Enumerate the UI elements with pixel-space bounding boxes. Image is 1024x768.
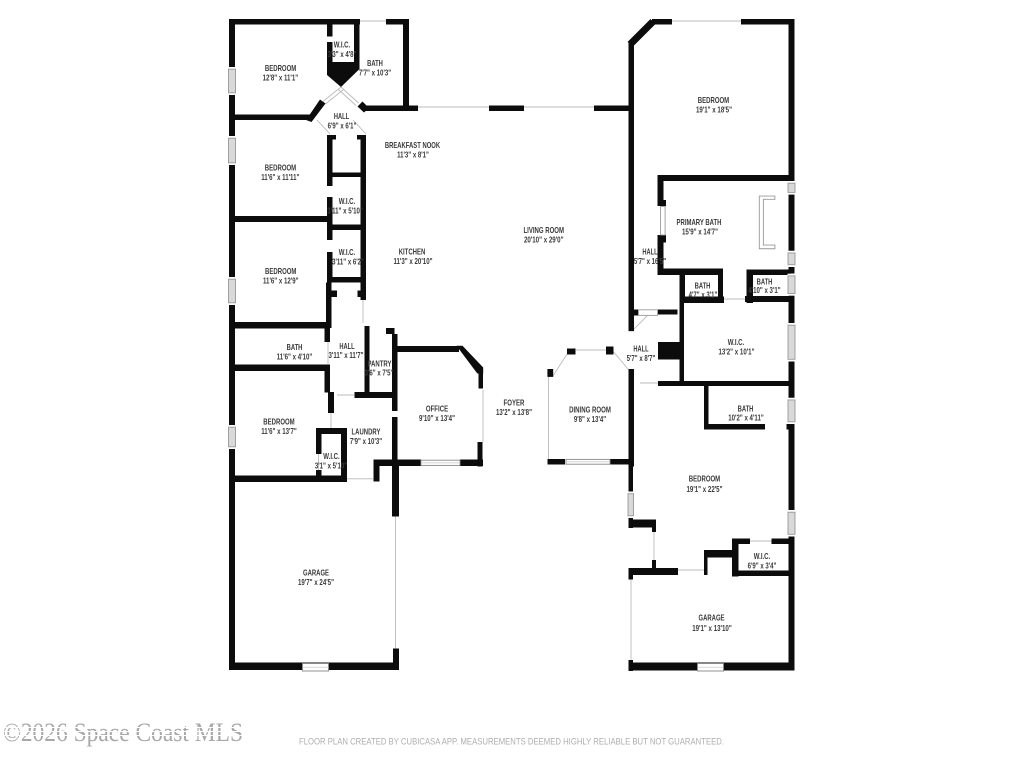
svg-text:5'7" x 8'7": 5'7" x 8'7" (627, 354, 656, 363)
svg-text:BEDROOM: BEDROOM (265, 267, 297, 276)
svg-text:19'1" x 13'10": 19'1" x 13'10" (692, 624, 732, 633)
svg-text:20'10" x 29'0": 20'10" x 29'0" (524, 235, 564, 244)
svg-text:W.I.C.: W.I.C. (334, 40, 351, 49)
svg-text:6'9" x 6'1": 6'9" x 6'1" (328, 121, 357, 130)
svg-text:BATH: BATH (695, 281, 711, 290)
svg-text:7'7" x 10'3": 7'7" x 10'3" (359, 68, 391, 77)
svg-text:GARAGE: GARAGE (699, 613, 725, 622)
svg-text:12'8" x 11'1": 12'8" x 11'1" (263, 74, 299, 83)
svg-text:W.I.C.: W.I.C. (728, 338, 745, 347)
svg-text:PANTRY: PANTRY (367, 359, 392, 368)
svg-text:10'2" x 4'11": 10'2" x 4'11" (728, 413, 764, 422)
svg-text:PRIMARY BATH: PRIMARY BATH (677, 218, 722, 227)
svg-text:W.I.C.: W.I.C. (339, 197, 356, 206)
svg-text:BEDROOM: BEDROOM (689, 474, 721, 483)
svg-text:11'6" x 12'9": 11'6" x 12'9" (263, 276, 299, 285)
svg-text:3'3" x 4'8": 3'3" x 4'8" (328, 50, 357, 59)
svg-text:3'11" x 6'2": 3'11" x 6'2" (332, 257, 364, 266)
svg-text:GARAGE: GARAGE (303, 568, 329, 577)
svg-text:13'2" x 10'1": 13'2" x 10'1" (719, 347, 755, 356)
svg-text:BATH: BATH (738, 404, 754, 413)
svg-text:3'1" x 5'10": 3'1" x 5'10" (315, 461, 347, 470)
svg-text:4'10" x 3'1": 4'10" x 3'1" (748, 286, 780, 295)
svg-text:11'3" x 8'1": 11'3" x 8'1" (397, 150, 429, 159)
svg-text:11'6" x 11'11": 11'6" x 11'11" (261, 173, 299, 182)
svg-text:4'7" x 3'1": 4'7" x 3'1" (689, 290, 718, 299)
svg-text:BATH: BATH (287, 343, 303, 352)
svg-text:11'6" x 4'10": 11'6" x 4'10" (277, 352, 313, 361)
svg-text:BREAKFAST NOOK: BREAKFAST NOOK (385, 141, 440, 150)
svg-text:3'11" x 5'10": 3'11" x 5'10" (327, 206, 363, 215)
svg-text:KITCHEN: KITCHEN (399, 247, 426, 256)
svg-text:11'6" x 13'7": 11'6" x 13'7" (261, 427, 297, 436)
svg-text:19'1" x 22'5": 19'1" x 22'5" (687, 485, 723, 494)
svg-text:W.I.C.: W.I.C. (754, 552, 771, 561)
svg-text:11'3" x 20'10": 11'3" x 20'10" (393, 257, 432, 266)
svg-text:FOYER: FOYER (504, 398, 525, 407)
svg-text:©2026 Space Coast MLS: ©2026 Space Coast MLS (3, 718, 243, 747)
svg-text:BEDROOM: BEDROOM (698, 96, 730, 105)
svg-text:3'11" x 11'7": 3'11" x 11'7" (329, 351, 364, 360)
svg-text:BEDROOM: BEDROOM (265, 64, 297, 73)
svg-text:19'7" x 24'5": 19'7" x 24'5" (298, 578, 334, 587)
svg-text:5'7" x 16'5": 5'7" x 16'5" (634, 257, 666, 266)
svg-text:LAUNDRY: LAUNDRY (352, 427, 381, 436)
svg-text:FLOOR PLAN CREATED BY CUBICASA: FLOOR PLAN CREATED BY CUBICASA APP. MEAS… (299, 737, 724, 747)
svg-text:9'8" x 13'4": 9'8" x 13'4" (574, 415, 606, 424)
svg-text:DINING ROOM: DINING ROOM (569, 405, 611, 414)
svg-text:HALL: HALL (334, 112, 349, 121)
svg-text:HALL: HALL (642, 247, 657, 256)
svg-text:7'9" x 10'3": 7'9" x 10'3" (350, 437, 382, 446)
svg-text:9'10" x 13'4": 9'10" x 13'4" (419, 414, 455, 423)
svg-text:W.I.C.: W.I.C. (323, 452, 340, 461)
svg-text:HALL: HALL (633, 344, 648, 353)
svg-text:6'9" x 3'4": 6'9" x 3'4" (748, 561, 777, 570)
svg-text:3'6" x 7'5": 3'6" x 7'5" (365, 368, 394, 377)
svg-text:19'1" x 18'5": 19'1" x 18'5" (696, 105, 732, 114)
svg-text:13'2" x 13'8": 13'2" x 13'8" (496, 408, 532, 417)
svg-text:BATH: BATH (367, 59, 383, 68)
svg-text:BEDROOM: BEDROOM (265, 163, 297, 172)
svg-text:LIVING ROOM: LIVING ROOM (524, 226, 565, 235)
svg-text:BEDROOM: BEDROOM (263, 417, 295, 426)
svg-text:W.I.C.: W.I.C. (339, 248, 356, 257)
svg-text:HALL: HALL (339, 342, 354, 351)
svg-text:OFFICE: OFFICE (426, 404, 449, 413)
svg-text:15'9" x 14'7": 15'9" x 14'7" (682, 227, 718, 236)
